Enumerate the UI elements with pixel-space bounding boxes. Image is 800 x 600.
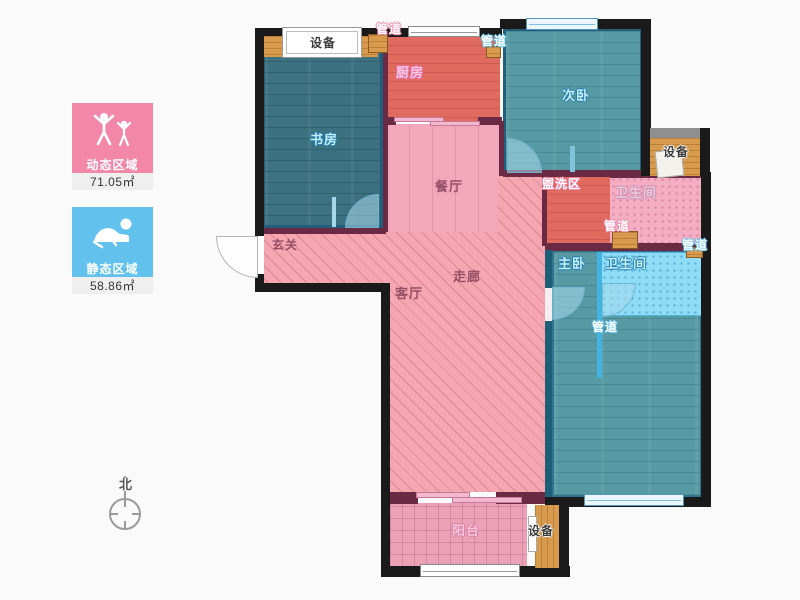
label-bath1: 卫生间 (615, 186, 657, 199)
label-bath2: 卫生间 (605, 257, 647, 270)
label-dining: 餐厅 (435, 180, 463, 193)
room-dining-floor (386, 124, 500, 232)
label-entry: 玄关 (272, 239, 298, 251)
bay-wood-left (264, 36, 283, 57)
kitchen-window (408, 26, 480, 37)
person-resting-icon (72, 215, 153, 249)
wall-balcony-bottom-left (381, 566, 420, 577)
legend-dynamic-card: 动态区域 (72, 103, 153, 180)
wall-below-bedroom2-left (499, 121, 504, 176)
wall-right-main (701, 172, 711, 507)
label-living: 客厅 (395, 287, 423, 300)
wall-living-bottom-left (386, 492, 418, 504)
entry-door-swing (216, 236, 258, 278)
wall-equip-right-outer (699, 128, 710, 176)
bedroom2-door-leaf (570, 146, 575, 172)
label-bedroom2: 次卧 (562, 89, 590, 102)
people-cheering-icon (72, 111, 153, 147)
label-kitchen: 厨房 (396, 66, 424, 79)
wall-equip-bottom-right (559, 497, 569, 569)
label-equipment-bottom: 设备 (528, 525, 554, 537)
label-pipe-1: 管道 (376, 23, 402, 35)
label-pipe-2: 管道 (481, 35, 507, 47)
label-master: 主卧 (558, 257, 586, 270)
study-door-leaf (332, 197, 336, 227)
living-sliding-door-b (452, 497, 522, 503)
legend-static-card: 静态区域 (72, 207, 153, 284)
legend-static-area: 58.86㎡ (72, 277, 153, 294)
equip-right-gray-bar (650, 128, 700, 138)
wall-master-left-2 (545, 321, 552, 497)
wall-hall-bottom (255, 283, 389, 292)
label-equipment-bay: 设备 (310, 37, 336, 49)
compass-north-label: 北 (118, 478, 134, 491)
compass: 北 (103, 476, 147, 534)
pipe-box-1 (368, 34, 388, 53)
label-corridor: 走廊 (453, 270, 481, 283)
wall-kitchen-bottom-right (478, 117, 502, 125)
label-pipe-4: 管道 (682, 239, 708, 251)
label-wash: 盥洗区 (542, 178, 581, 190)
master-window (584, 494, 684, 506)
wall-left-upper (255, 28, 264, 240)
legend-dynamic-area: 71.05㎡ (72, 173, 153, 190)
label-balcony: 阳台 (452, 524, 480, 537)
label-pipe-3: 管道 (604, 220, 630, 232)
label-pipe-5: 管道 (592, 321, 618, 333)
wall-living-left (381, 283, 390, 576)
kitchen-sliding-door-b (430, 121, 480, 126)
wall-study-bottom (262, 228, 386, 234)
wall-master-left (545, 250, 552, 288)
pipe-box-3 (612, 231, 638, 249)
balcony-window (420, 564, 520, 577)
legend-dynamic-label: 动态区域 (86, 156, 138, 173)
label-study: 书房 (310, 133, 338, 146)
master-door-gap (545, 288, 552, 321)
bedroom2-window (526, 18, 598, 30)
legend-static-label: 静态区域 (86, 260, 138, 277)
wall-study-right (383, 30, 388, 232)
label-equipment-right: 设备 (663, 146, 689, 158)
